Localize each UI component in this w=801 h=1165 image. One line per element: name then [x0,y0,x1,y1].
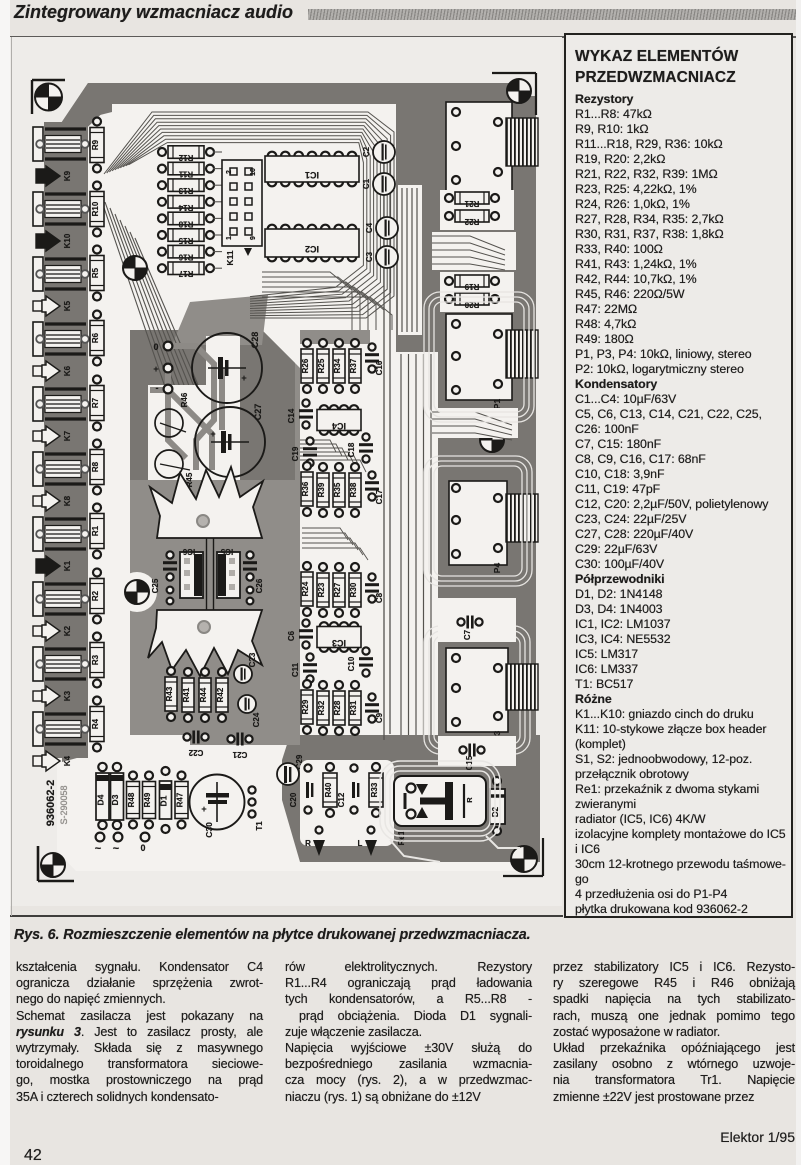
svg-text:+: + [201,804,206,814]
svg-text:R6: R6 [91,332,100,343]
svg-text:2: 2 [226,170,233,174]
svg-text:R44: R44 [199,687,208,702]
svg-text:D1: D1 [159,795,169,806]
svg-text:IC1: IC1 [305,170,319,180]
svg-text:R21: R21 [464,199,479,208]
svg-text:K3: K3 [63,690,72,701]
svg-text:C9: C9 [375,712,384,723]
svg-text:D4: D4 [96,794,106,805]
svg-text:K2: K2 [63,625,72,636]
svg-text:C4: C4 [365,222,374,233]
svg-text:R46: R46 [180,392,189,407]
svg-text:+: + [241,373,246,383]
svg-text:-: - [156,383,159,393]
svg-text:R29: R29 [301,699,310,714]
svg-text:R47: R47 [176,792,185,807]
svg-text:R31: R31 [349,700,358,715]
svg-text:IC5: IC5 [220,547,233,556]
svg-text:K9: K9 [63,170,72,181]
svg-text:C6: C6 [287,630,296,641]
svg-text:936062-2: 936062-2 [45,780,57,827]
svg-text:R14: R14 [178,203,193,212]
svg-text:R3: R3 [91,654,100,665]
svg-text:R26: R26 [301,358,310,373]
svg-text:R18: R18 [178,219,193,228]
svg-text:C27: C27 [253,404,263,421]
svg-text:D3: D3 [110,794,120,805]
svg-text:~: ~ [95,843,102,855]
svg-text:10: 10 [250,168,257,176]
svg-text:R5: R5 [91,267,100,278]
svg-text:IC4: IC4 [332,421,346,431]
svg-text:~: ~ [113,843,120,855]
svg-text:R2: R2 [91,590,100,601]
svg-text:C24: C24 [252,712,261,727]
svg-text:R43: R43 [165,686,174,701]
svg-text:C8: C8 [375,592,384,603]
svg-text:R10: R10 [91,201,100,216]
svg-text:K10: K10 [63,233,72,248]
svg-text:C3: C3 [365,251,374,262]
svg-text:0: 0 [140,843,145,853]
svg-text:1: 1 [226,236,233,240]
svg-text:L: L [358,839,363,848]
svg-text:R35: R35 [333,482,342,497]
svg-text:R13: R13 [178,186,193,195]
svg-text:C30: C30 [204,822,214,838]
svg-text:R37: R37 [349,358,358,373]
svg-text:K6: K6 [63,365,72,376]
svg-text:R1: R1 [91,525,100,536]
svg-text:R16: R16 [178,253,193,262]
svg-text:K4: K4 [63,755,72,766]
svg-text:R11: R11 [178,170,193,179]
svg-text:R: R [465,797,474,803]
svg-text:R24: R24 [301,581,310,596]
svg-text:R40: R40 [324,782,333,797]
svg-text:P4: P4 [492,563,502,574]
svg-text:R30: R30 [349,582,358,597]
svg-text:C7: C7 [463,629,472,640]
svg-text:C23: C23 [248,652,257,667]
svg-text:S-290058: S-290058 [59,785,69,824]
svg-text:C15: C15 [465,755,474,770]
svg-text:K7: K7 [63,430,72,441]
svg-text:C21: C21 [232,750,247,759]
svg-text:C19: C19 [291,446,300,461]
svg-text:R17: R17 [178,269,193,278]
svg-text:R9: R9 [91,139,100,150]
svg-text:C18: C18 [347,442,356,457]
svg-text:C20: C20 [289,792,298,807]
svg-text:R36: R36 [301,481,310,496]
svg-text:R22: R22 [464,217,479,226]
svg-text:R39: R39 [317,482,326,497]
svg-text:K5: K5 [63,300,72,311]
svg-text:IC2: IC2 [305,244,319,254]
svg-text:R8: R8 [91,461,100,472]
svg-text:Re1: Re1 [397,830,406,845]
svg-text:IC6: IC6 [182,547,195,556]
svg-text:+: + [153,364,158,374]
svg-text:R4: R4 [91,718,100,729]
svg-text:C22: C22 [188,748,203,757]
svg-text:C17: C17 [375,489,384,504]
svg-text:R: R [305,839,311,848]
svg-text:R15: R15 [178,236,193,245]
svg-text:R23: R23 [317,582,326,597]
svg-text:C2: C2 [362,146,371,157]
svg-text:C1: C1 [362,178,371,189]
svg-text:T1: T1 [255,821,264,831]
svg-text:K8: K8 [63,495,72,506]
svg-text:R27: R27 [333,582,342,597]
svg-text:C16: C16 [375,360,384,375]
svg-text:C25: C25 [151,578,160,593]
svg-text:R32: R32 [317,700,326,715]
svg-text:C11: C11 [291,662,300,677]
svg-text:R49: R49 [143,792,152,807]
svg-text:R28: R28 [333,700,342,715]
svg-text:C10: C10 [347,656,356,671]
svg-text:R25: R25 [317,358,326,373]
svg-text:R19: R19 [464,282,479,291]
svg-text:0: 0 [153,342,158,352]
svg-text:R41: R41 [182,687,191,702]
svg-text:R7: R7 [91,397,100,408]
svg-text:R33: R33 [370,782,379,797]
svg-text:P1: P1 [492,399,502,410]
svg-text:C12: C12 [337,792,346,807]
svg-text:+: + [210,429,215,439]
svg-text:R42: R42 [216,687,225,702]
svg-text:K11: K11 [225,250,235,265]
svg-text:C14: C14 [287,408,296,423]
svg-text:9: 9 [250,236,257,240]
svg-text:R34: R34 [333,358,342,373]
svg-text:R12: R12 [178,153,193,162]
svg-text:K1: K1 [63,560,72,571]
svg-text:R48: R48 [127,792,136,807]
svg-text:R38: R38 [349,482,358,497]
svg-text:IC3: IC3 [332,638,346,648]
svg-text:C26: C26 [255,578,264,593]
svg-text:C28: C28 [250,332,260,349]
